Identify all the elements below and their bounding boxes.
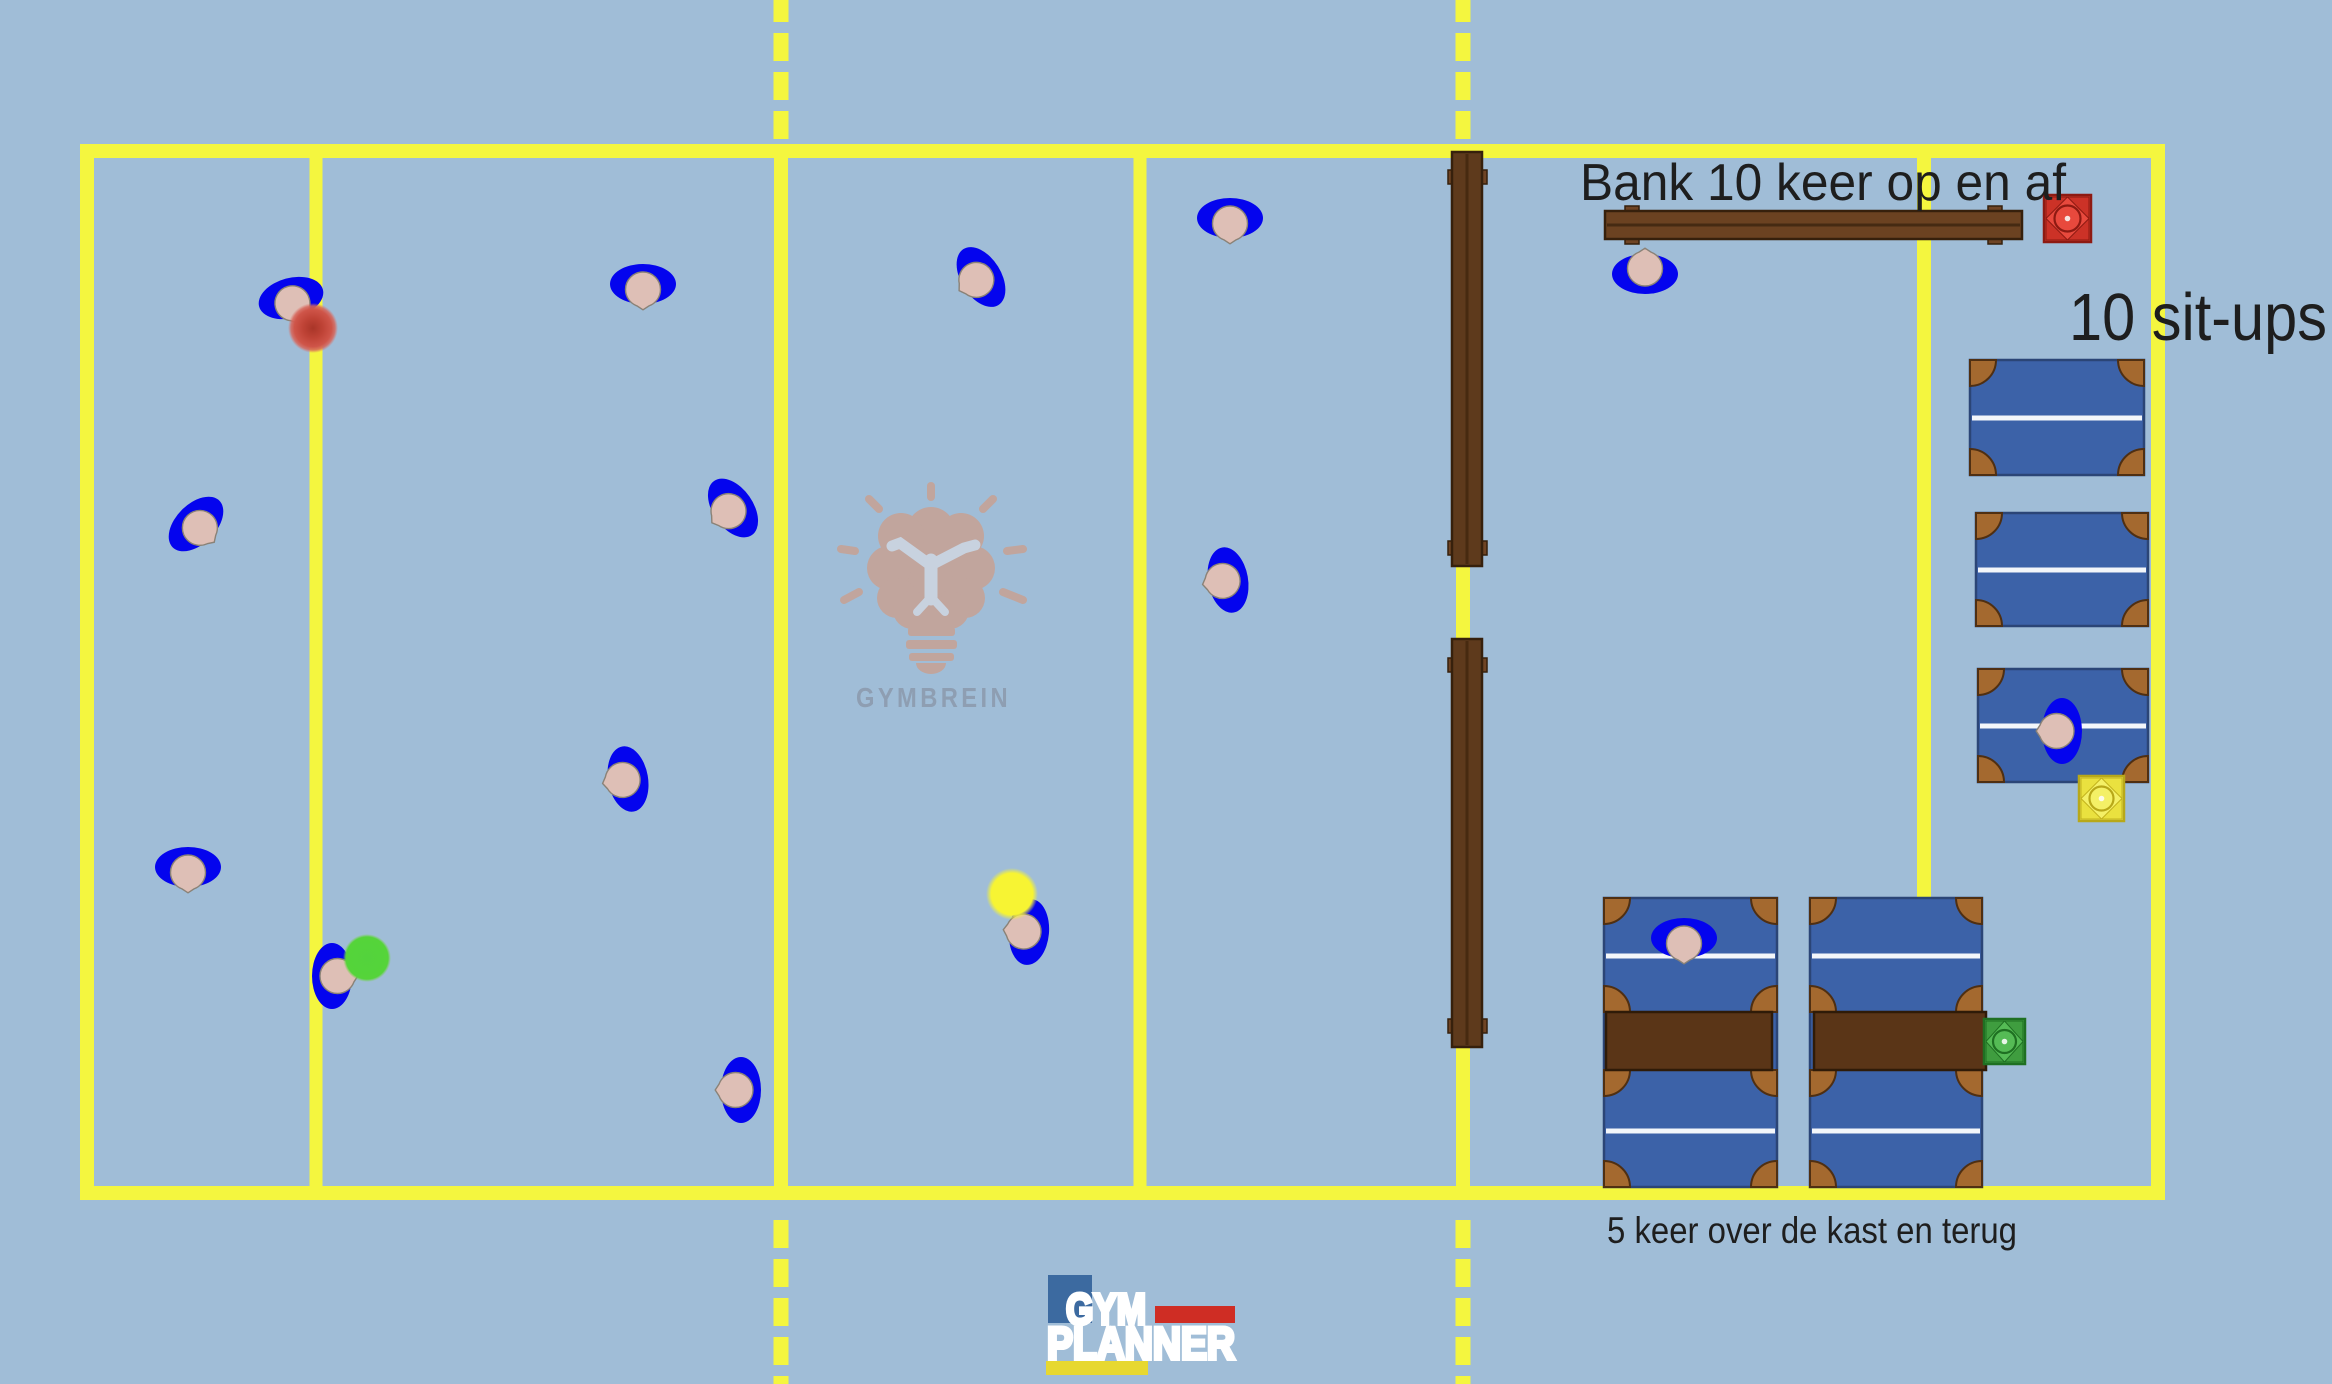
svg-text:GYMBREIN: GYMBREIN xyxy=(856,682,1011,713)
svg-text:PLANNER: PLANNER xyxy=(1047,1318,1235,1369)
svg-text:10 sit-ups: 10 sit-ups xyxy=(2069,280,2327,355)
svg-text:5 keer over de kast en terug: 5 keer over de kast en terug xyxy=(1607,1210,2017,1251)
svg-text:Bank 10 keer op en af: Bank 10 keer op en af xyxy=(1580,154,2067,212)
